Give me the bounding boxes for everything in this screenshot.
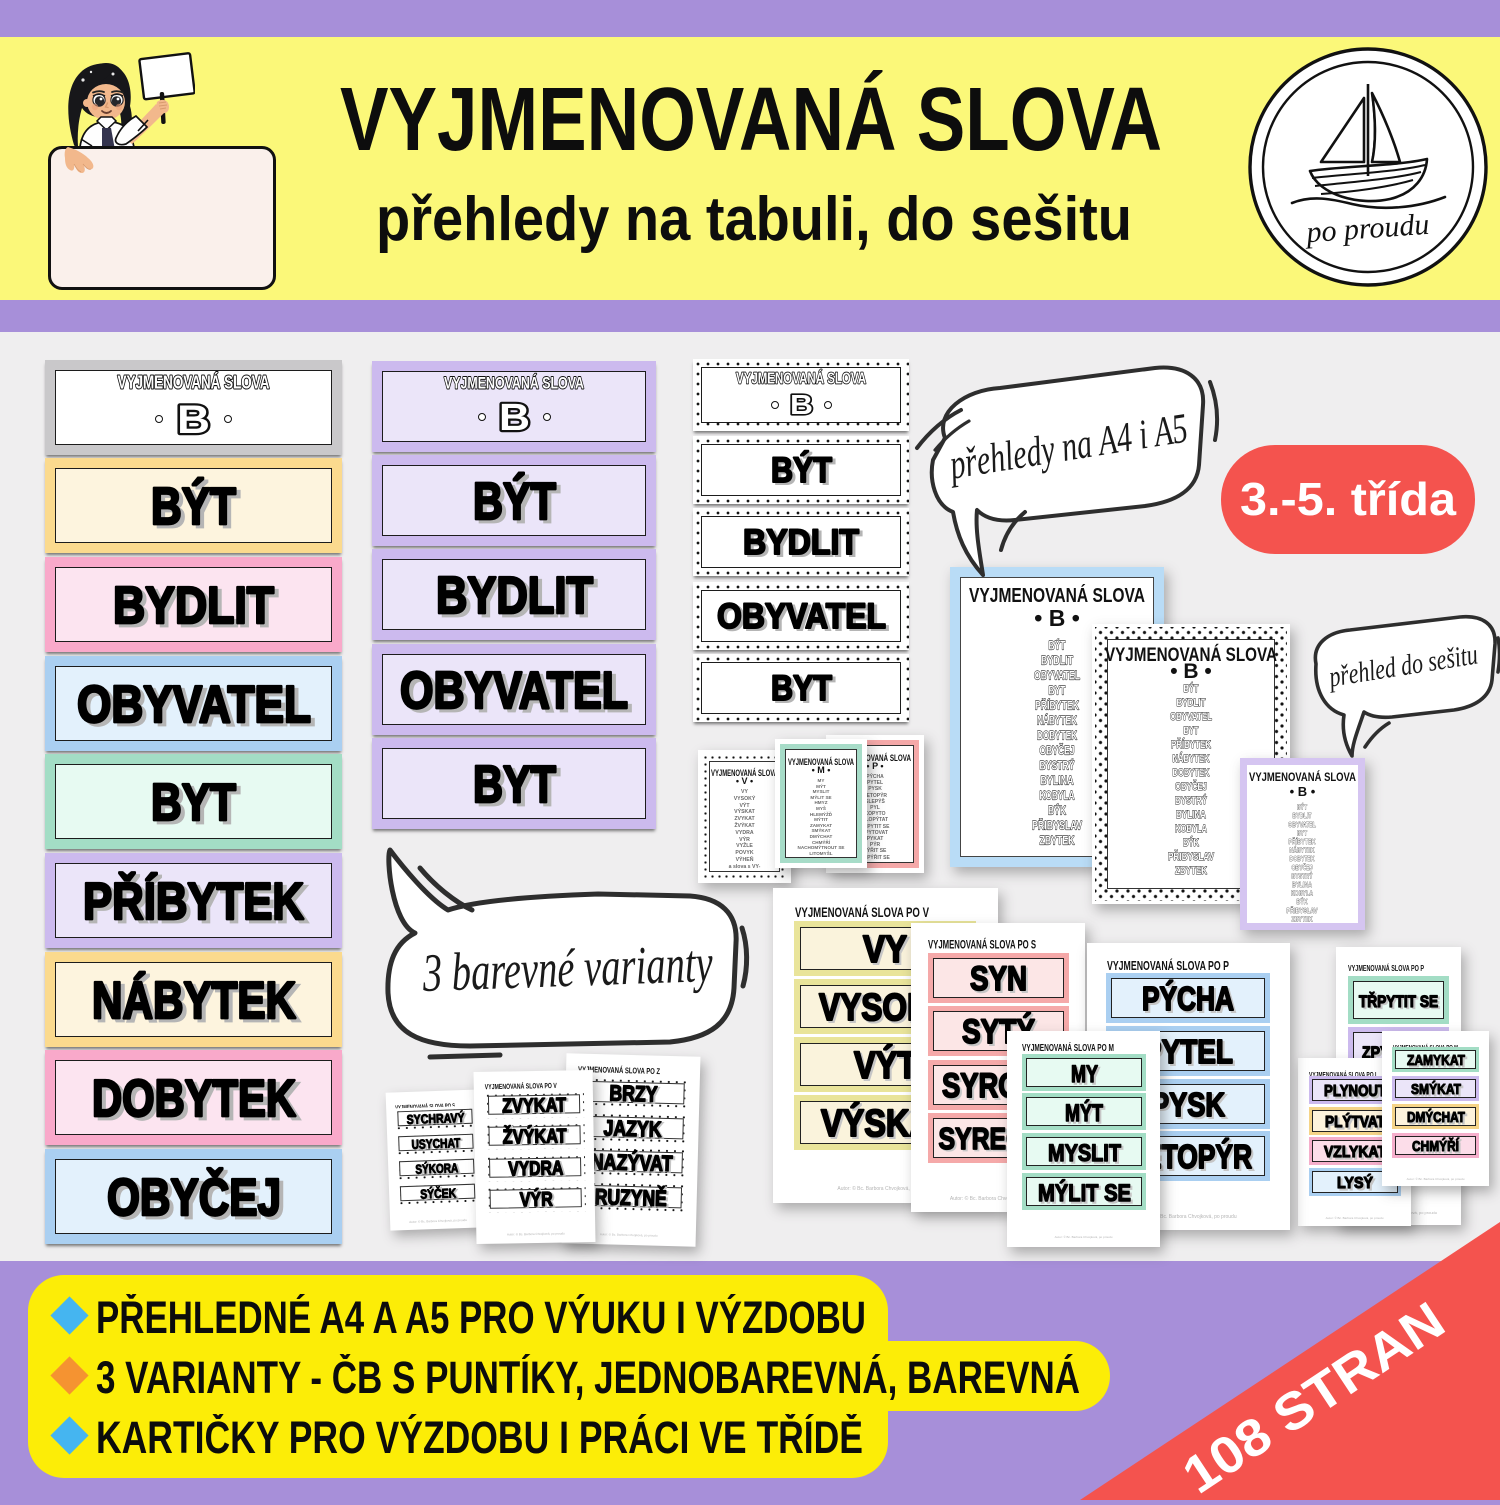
svg-text:MY: MY — [1071, 1061, 1098, 1088]
svg-text:3 VARIANTY - ČB S PUNTÍKY, JED: 3 VARIANTY - ČB S PUNTÍKY, JEDNOBAREVNÁ,… — [96, 1354, 1080, 1403]
svg-text:RUZYNĚ: RUZYNĚ — [594, 1184, 667, 1211]
svg-text:OBYVATEL: OBYVATEL — [1170, 711, 1212, 723]
svg-text:PŘIBYSLAV: PŘIBYSLAV — [1168, 850, 1214, 863]
svg-text:VYJMENOVANÁ SLOVA: VYJMENOVANÁ SLOVA — [444, 373, 584, 392]
svg-text:BÝT: BÝT — [151, 477, 236, 536]
svg-text:PLYNOUT: PLYNOUT — [1324, 1083, 1386, 1100]
svg-text:BYT: BYT — [1184, 725, 1199, 737]
svg-text:OBYVATEL: OBYVATEL — [717, 597, 886, 636]
svg-text:KOBYLA: KOBYLA — [1175, 823, 1207, 835]
svg-text:PLÝTVAT: PLÝTVAT — [1325, 1112, 1385, 1131]
svg-text:VÝR: VÝR — [519, 1187, 553, 1212]
svg-text:BÝK: BÝK — [1048, 802, 1066, 817]
svg-text:SÝKORA: SÝKORA — [415, 1160, 459, 1177]
svg-text:3.-5. třída: 3.-5. třída — [1240, 473, 1456, 525]
svg-text:TŘPYTIT SE: TŘPYTIT SE — [1359, 991, 1438, 1010]
svg-text:BÝT: BÝT — [771, 450, 832, 490]
svg-text:VYJMENOVANÁ SLOVA: VYJMENOVANÁ SLOVA — [118, 372, 270, 393]
svg-text:PŘÍBYTEK: PŘÍBYTEK — [1171, 738, 1211, 751]
svg-text:ZAMYKAT: ZAMYKAT — [1407, 1052, 1465, 1069]
svg-text:USYCHAT: USYCHAT — [411, 1135, 461, 1152]
svg-text:OBYVATEL: OBYVATEL — [400, 662, 628, 720]
svg-text:PŘIBYSLAV: PŘIBYSLAV — [1032, 817, 1083, 832]
svg-text:BYT: BYT — [771, 669, 832, 708]
svg-text:VYJMENOVANÁ SLOVA: VYJMENOVANÁ SLOVA — [340, 70, 1162, 170]
svg-text:OBYČEJ: OBYČEJ — [107, 1168, 281, 1227]
svg-text:MYSLIT: MYSLIT — [1048, 1140, 1121, 1167]
svg-text:B: B — [499, 397, 530, 439]
svg-text:OBYVATEL: OBYVATEL — [77, 676, 311, 734]
svg-text:ZBYTEK: ZBYTEK — [1292, 914, 1313, 923]
svg-text:ZBYTEK: ZBYTEK — [1175, 865, 1207, 877]
svg-text:BÝT: BÝT — [473, 472, 556, 531]
svg-text:VZLYKAT: VZLYKAT — [1324, 1144, 1386, 1161]
svg-text:PYSK: PYSK — [1151, 1086, 1225, 1123]
svg-text:BYDLIT: BYDLIT — [1041, 653, 1073, 667]
svg-text:LYSÝ: LYSÝ — [1337, 1173, 1373, 1192]
svg-text:SYN: SYN — [970, 960, 1027, 998]
svg-text:MÝT: MÝT — [1065, 1099, 1103, 1127]
svg-text:BYT: BYT — [151, 774, 236, 832]
svg-text:PŘEHLEDNÉ A4 A A5 PRO VÝUKU I: PŘEHLEDNÉ A4 A A5 PRO VÝUKU I VÝZDOBU — [96, 1294, 866, 1343]
svg-text:VYJMENOVANÁ SLOVA PO S: VYJMENOVANÁ SLOVA PO S — [928, 939, 1036, 952]
svg-text:KOBYLA: KOBYLA — [1040, 788, 1075, 802]
svg-text:ZBYTEK: ZBYTEK — [1040, 833, 1075, 847]
svg-text:OBYVATEL: OBYVATEL — [1034, 668, 1080, 682]
svg-text:B: B — [177, 398, 210, 442]
svg-text:BYDLIT: BYDLIT — [436, 567, 593, 625]
svg-text:BYSTRÝ: BYSTRÝ — [1040, 757, 1076, 772]
svg-text:VYDRA: VYDRA — [508, 1158, 563, 1181]
svg-text:VYJMENOVANÁ SLOVA PO P: VYJMENOVANÁ SLOVA PO P — [1348, 964, 1424, 973]
svg-text:NÁBYTEK: NÁBYTEK — [1037, 712, 1077, 727]
svg-text:DMÝCHAT: DMÝCHAT — [1407, 1108, 1465, 1126]
svg-text:SMÝKAT: SMÝKAT — [1411, 1080, 1461, 1098]
svg-text:BYT: BYT — [473, 756, 556, 814]
svg-text:CHMÝŘÍ: CHMÝŘÍ — [1412, 1137, 1460, 1155]
svg-text:JAZYK: JAZYK — [603, 1115, 662, 1142]
svg-text:BYLINA: BYLINA — [1041, 773, 1074, 787]
svg-text:OBYČEJ: OBYČEJ — [1175, 780, 1207, 793]
svg-text:VY: VY — [863, 929, 907, 971]
svg-text:PÝCHA: PÝCHA — [1142, 980, 1234, 1017]
svg-text:PŘÍBYTEK: PŘÍBYTEK — [1035, 697, 1079, 712]
svg-text:ŽVÝKAT: ŽVÝKAT — [502, 1123, 566, 1148]
svg-text:BÝT: BÝT — [1049, 637, 1066, 652]
svg-text:BYSTRÝ: BYSTRÝ — [1175, 794, 1207, 807]
svg-text:MÝLIT SE: MÝLIT SE — [1038, 1179, 1131, 1207]
svg-text:NÁBYTEK: NÁBYTEK — [1173, 752, 1210, 765]
svg-text:DOBYTEK: DOBYTEK — [1173, 767, 1210, 779]
svg-text:NAZÝVAT: NAZÝVAT — [590, 1148, 673, 1175]
svg-text:DOBYTEK: DOBYTEK — [1037, 728, 1077, 742]
svg-text:BÝT: BÝT — [1184, 682, 1199, 695]
svg-text:VYJMENOVANÁ SLOVA PO V: VYJMENOVANÁ SLOVA PO V — [485, 1081, 557, 1091]
svg-text:VYJMENOVANÁ SLOVA PO P: VYJMENOVANÁ SLOVA PO P — [1107, 958, 1229, 973]
svg-text:SÝČEK: SÝČEK — [419, 1185, 456, 1201]
svg-text:KARTIČKY PRO VÝZDOBU I PRÁCI V: KARTIČKY PRO VÝZDOBU I PRÁCI VE TŘÍDĚ — [96, 1414, 863, 1463]
svg-text:NÁBYTEK: NÁBYTEK — [92, 972, 296, 1030]
svg-text:BÝK: BÝK — [1183, 836, 1199, 849]
svg-text:ZVYKAT: ZVYKAT — [502, 1094, 566, 1117]
svg-text:BYLINA: BYLINA — [1176, 809, 1206, 821]
svg-text:VYJMENOVANÁ SLOVA PO M: VYJMENOVANÁ SLOVA PO M — [1022, 1041, 1114, 1054]
svg-text:3 barevné varianty: 3 barevné varianty — [421, 933, 714, 1003]
svg-text:VYJMENOVANÁ SLOVA: VYJMENOVANÁ SLOVA — [736, 370, 866, 387]
svg-text:BYDLIT: BYDLIT — [1177, 697, 1206, 709]
svg-text:SYCHRAVÝ: SYCHRAVÝ — [406, 1109, 465, 1126]
svg-text:BYT: BYT — [1049, 683, 1066, 697]
svg-text:B: B — [790, 389, 813, 420]
svg-text:BYDLIT: BYDLIT — [113, 577, 274, 635]
svg-text:VYJMENOVANÁ SLOVA PO V: VYJMENOVANÁ SLOVA PO V — [795, 904, 929, 920]
svg-text:PŘÍBYTEK: PŘÍBYTEK — [83, 872, 304, 931]
svg-text:OBYČEJ: OBYČEJ — [1040, 742, 1075, 757]
svg-text:přehledy na tabuli, do sešitu: přehledy na tabuli, do sešitu — [376, 185, 1132, 254]
svg-text:BRZY: BRZY — [609, 1080, 658, 1106]
svg-text:VÝT: VÝT — [854, 1043, 917, 1087]
svg-text:DOBYTEK: DOBYTEK — [92, 1070, 296, 1128]
svg-text:BYDLIT: BYDLIT — [743, 523, 859, 562]
